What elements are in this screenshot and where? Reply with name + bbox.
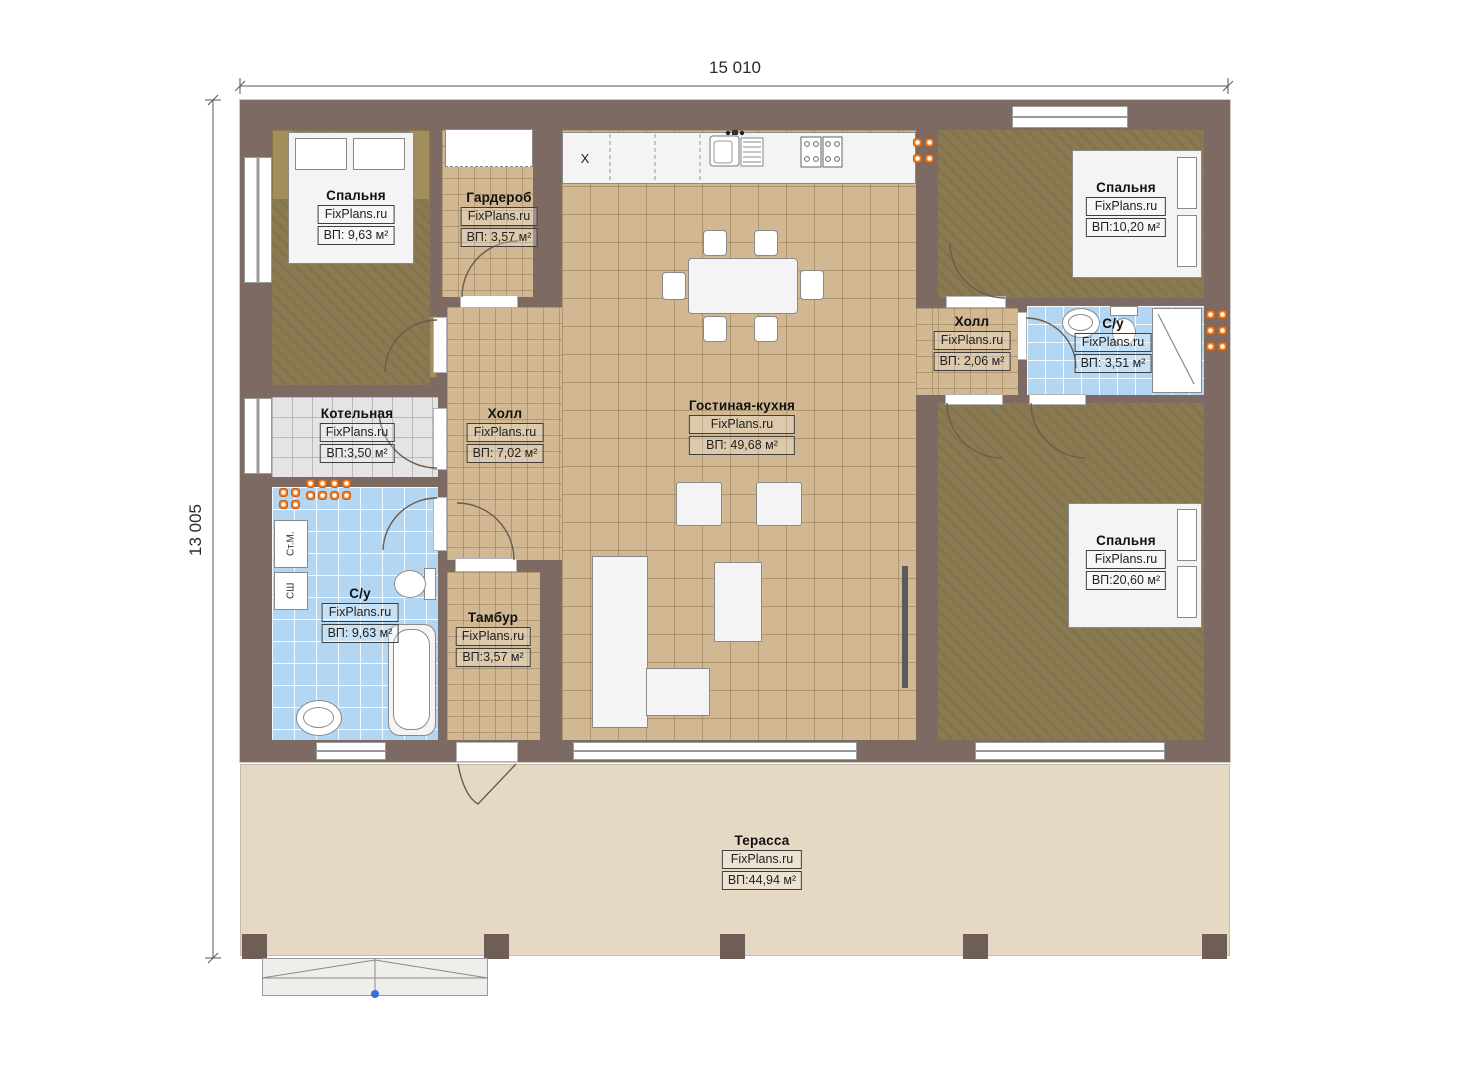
radiator-icon [1206,310,1215,319]
dimension-top-label: 15 010 [709,58,761,78]
radiator-icon [1206,326,1215,335]
chair [703,230,727,256]
entrance-door-opening [456,742,518,762]
chair [754,316,778,342]
radiator-icon [913,138,922,147]
watermark: FixPlans.ru [689,415,795,434]
pillow [1177,566,1197,618]
shower-tray [1152,308,1202,393]
door-opening [455,558,517,572]
entrance-steps [262,958,488,996]
coffee-table [714,562,762,642]
radiator-icon [1218,310,1227,319]
washing-machine: Ст.М. [274,520,308,568]
radiator-icon [925,138,934,147]
chair [703,316,727,342]
room-label-bedroom-top-left: Спальня FixPlans.ru ВП: 9,63 м² [318,188,395,245]
wardrobe-closet [445,129,533,167]
radiator-icon [1218,326,1227,335]
armchair [756,482,802,526]
watermark: FixPlans.ru [456,627,531,646]
room-area: ВП:3,57 м² [456,648,531,667]
chair [662,272,686,300]
armchair [676,482,722,526]
watermark: FixPlans.ru [934,331,1011,350]
radiator-icon [913,154,922,163]
terrace-post [963,934,988,959]
room-area: ВП: 9,63 м² [322,624,399,643]
tv-unit [902,566,908,688]
chair [754,230,778,256]
watermark: FixPlans.ru [1086,197,1166,216]
door-opening [1029,394,1086,405]
dimension-left-label: 13 005 [186,504,206,556]
room-area: ВП: 3,57 м² [461,228,538,247]
pillow [1177,215,1197,267]
room-area: ВП: 49,68 м² [689,436,795,455]
radiator-icon [291,488,300,497]
door-opening [460,295,518,308]
room-label-vestibule: Тамбур FixPlans.ru ВП:3,57 м² [456,610,531,667]
toilet-tank [1110,306,1138,316]
sink [296,700,342,736]
radiator-icon [330,479,339,488]
watermark: FixPlans.ru [722,850,802,869]
room-label-bathroom-left: С/у FixPlans.ru ВП: 9,63 м² [322,586,399,643]
radiator-icon [306,479,315,488]
sofa-chaise [646,668,710,716]
watermark: FixPlans.ru [322,603,399,622]
dining-table [688,258,798,314]
radiator-icon [279,488,288,497]
window [244,157,272,283]
watermark: FixPlans.ru [467,423,544,442]
room-label-bedroom-bottom-right: Спальня FixPlans.ru ВП:20,60 м² [1086,533,1166,590]
room-label-bathroom-right: С/у FixPlans.ru ВП: 3,51 м² [1075,316,1152,373]
radiator-icon [342,479,351,488]
room-area: ВП: 9,63 м² [318,226,395,245]
kitchen-counter [562,132,916,184]
terrace-post [720,934,745,959]
pillow [295,138,347,170]
room-label-wardrobe: Гардероб FixPlans.ru ВП: 3,57 м² [461,190,538,247]
watermark: FixPlans.ru [320,423,395,442]
door-opening [433,497,447,551]
room-label-boiler-room: Котельная FixPlans.ru ВП:3,50 м² [320,406,395,463]
door-opening [433,408,447,470]
watermark: FixPlans.ru [1086,550,1166,569]
pillow [1177,157,1197,209]
radiator-icon [342,491,351,500]
door-opening [945,394,1003,405]
room-label-bedroom-top-right: Спальня FixPlans.ru ВП:10,20 м² [1086,180,1166,237]
radiator-icon [330,491,339,500]
terrace-post [484,934,509,959]
radiator-icon [306,491,315,500]
room-area: ВП:20,60 м² [1086,571,1166,590]
room-label-hall-right: Холл FixPlans.ru ВП: 2,06 м² [934,314,1011,371]
window [244,398,272,474]
sink-basin [303,707,334,728]
toilet-bowl [394,570,426,598]
room-area: ВП:10,20 м² [1086,218,1166,237]
sofa-corner [592,556,648,728]
room-label-terrace: Терасса FixPlans.ru ВП:44,94 м² [722,833,802,890]
door-opening [433,317,447,373]
radiator-icon [291,500,300,509]
room-area: ВП: 3,51 м² [1075,354,1152,373]
pillow [353,138,405,170]
radiator-icon [318,491,327,500]
radiator-icon [279,500,288,509]
window [316,742,386,760]
window [573,742,857,760]
radiator-icon [1206,342,1215,351]
window [975,742,1165,760]
watermark: FixPlans.ru [318,205,395,224]
terrace-post [242,934,267,959]
floor-plan-canvas: 15 010 13 005 X [0,0,1474,1080]
watermark: FixPlans.ru [461,207,538,226]
bathtub-inner [393,629,430,730]
radiator-icon [318,479,327,488]
radiator-icon [925,154,934,163]
chair [800,270,824,300]
kitchen-closet-label: X [565,136,605,180]
watermark: FixPlans.ru [1075,333,1152,352]
terrace-post [1202,934,1227,959]
room-area: ВП: 7,02 м² [467,444,544,463]
radiator-icon [1218,342,1227,351]
room-label-hall-center: Холл FixPlans.ru ВП: 7,02 м² [467,406,544,463]
room-area: ВП:3,50 м² [320,444,395,463]
room-label-living-kitchen: Гостиная-кухня FixPlans.ru ВП: 49,68 м² [689,398,795,455]
room-area: ВП: 2,06 м² [934,352,1011,371]
door-opening [1017,312,1027,360]
room-area: ВП:44,94 м² [722,871,802,890]
door-opening [946,296,1006,308]
window [1012,106,1128,128]
dryer-cabinet: СШ [274,572,308,610]
pillow [1177,509,1197,561]
